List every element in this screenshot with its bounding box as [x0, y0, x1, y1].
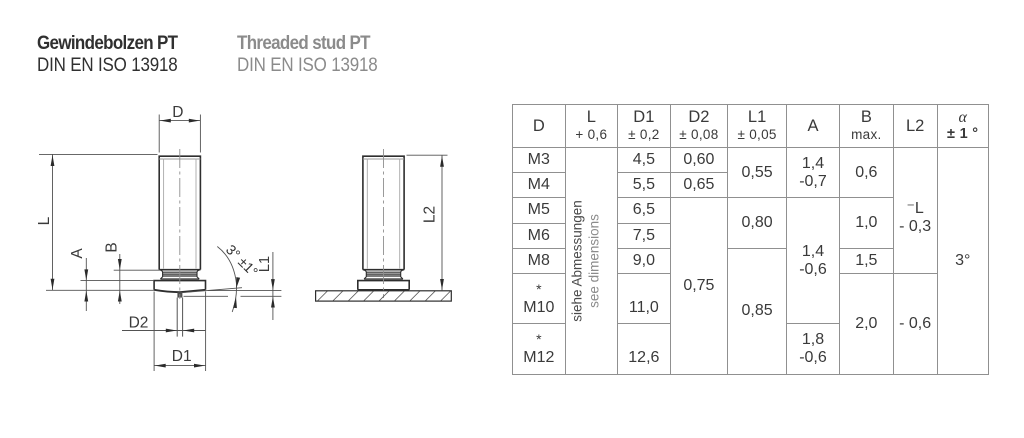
- svg-text:3° ±1°: 3° ±1°: [223, 241, 261, 279]
- svg-text:B: B: [103, 242, 120, 252]
- svg-text:A: A: [69, 248, 86, 259]
- svg-text:D1: D1: [172, 348, 192, 365]
- svg-text:L: L: [36, 216, 53, 225]
- svg-text:D2: D2: [129, 314, 149, 331]
- svg-text:D: D: [172, 104, 183, 121]
- svg-text:L2: L2: [421, 206, 438, 223]
